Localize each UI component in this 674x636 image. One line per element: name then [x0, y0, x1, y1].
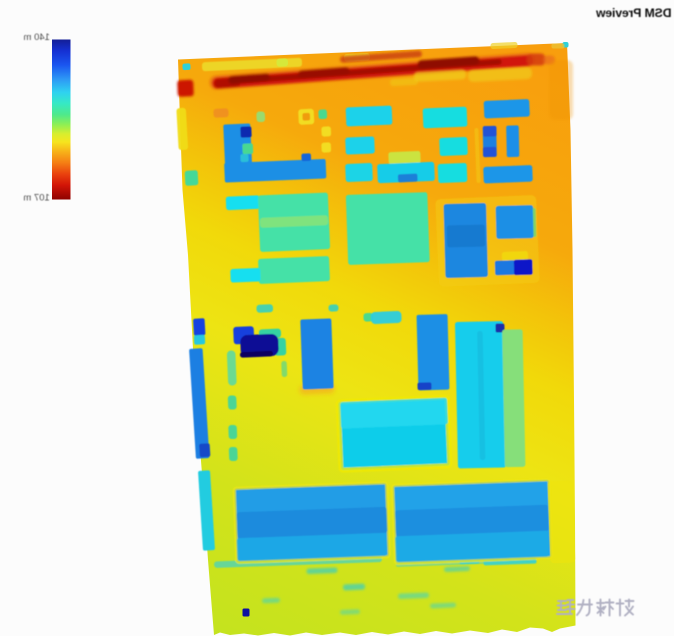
- svg-text:107 m: 107 m: [23, 193, 49, 204]
- svg-text:DSM Preview: DSM Preview: [595, 6, 671, 20]
- svg-text:140 m: 140 m: [23, 32, 49, 43]
